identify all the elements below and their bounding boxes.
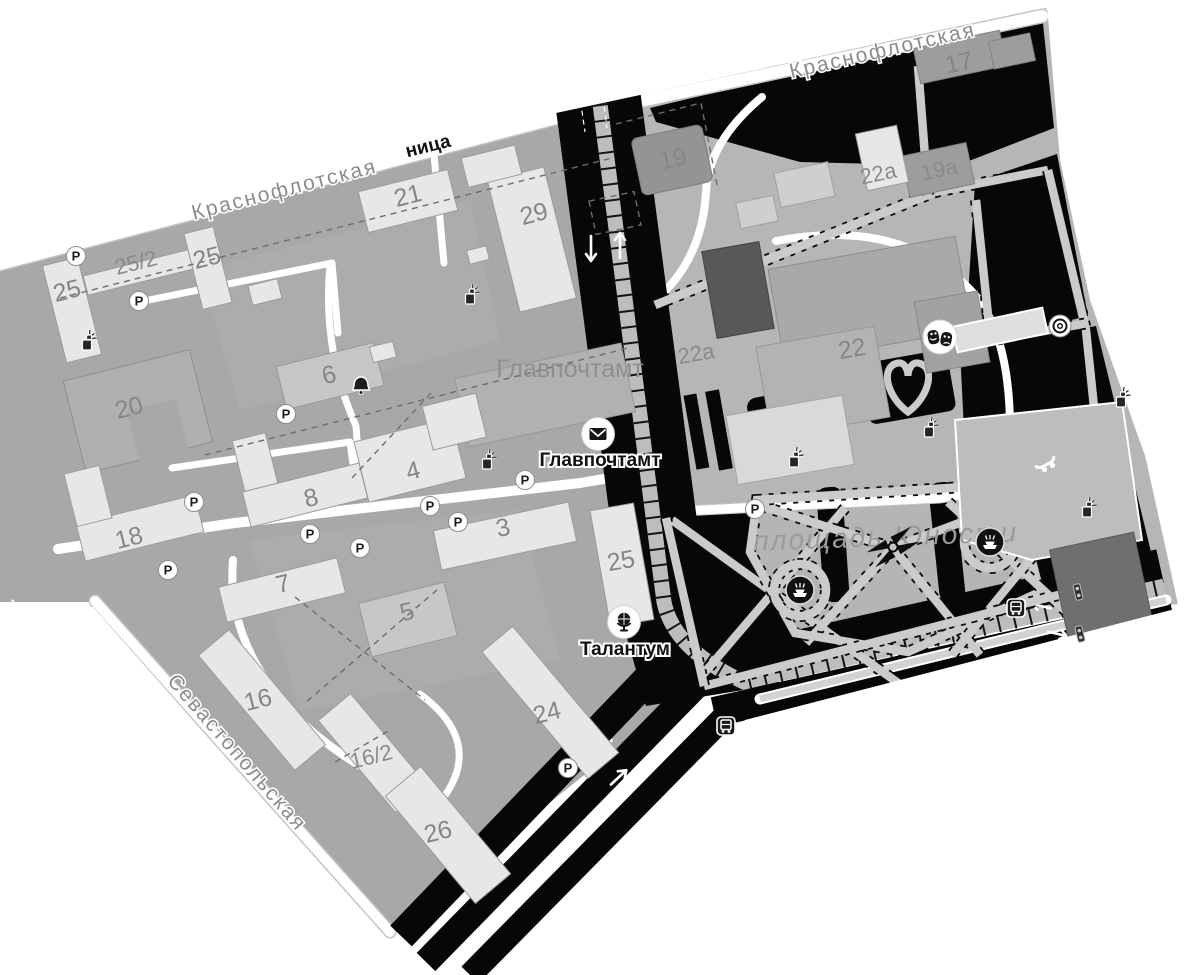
parking-marker[interactable]: P <box>67 247 86 266</box>
theater-poi[interactable] <box>923 320 957 354</box>
poi-label-talantum[interactable]: Талантум <box>580 639 670 660</box>
parking-icon: P <box>190 495 199 510</box>
map-canvas[interactable]: Краснофлотская Краснофлотская Севастопол… <box>0 0 1186 975</box>
parking-marker[interactable]: P <box>185 493 204 512</box>
memorial-target-marker[interactable] <box>1049 315 1071 337</box>
bus-icon <box>1007 599 1025 617</box>
mail-icon <box>590 428 607 440</box>
bus-stop-marker[interactable] <box>1007 599 1025 617</box>
area-label-post-office: Главпочтамт <box>496 355 644 383</box>
post-office-poi[interactable] <box>582 418 615 451</box>
parking-marker[interactable]: P <box>559 759 578 778</box>
parking-icon: P <box>306 527 315 542</box>
poi-label-post-office[interactable]: Главпочтамт <box>539 450 660 471</box>
bus-icon <box>717 717 735 735</box>
talantum-poi[interactable] <box>608 606 641 639</box>
parking-icon: P <box>564 761 573 776</box>
parking-icon: P <box>135 294 144 309</box>
building-number: 25 <box>605 545 637 577</box>
building-number: 17 <box>942 46 975 79</box>
parking-icon: P <box>164 563 173 578</box>
building-number: 22 <box>836 333 868 365</box>
fountain-icon <box>786 576 814 604</box>
parking-marker[interactable]: P <box>277 405 296 424</box>
parking-marker[interactable]: P <box>449 513 468 532</box>
parking-marker[interactable]: P <box>351 539 370 558</box>
fountain-icon <box>976 528 1004 556</box>
parking-icon: P <box>426 499 435 514</box>
parking-icon: P <box>521 473 530 488</box>
parking-marker[interactable]: P <box>516 471 535 490</box>
parking-icon: P <box>282 407 291 422</box>
bus-stop-marker[interactable] <box>717 717 735 735</box>
parking-marker[interactable]: P <box>130 292 149 311</box>
parking-icon: P <box>72 249 81 264</box>
fountain-marker[interactable] <box>976 528 1004 556</box>
parking-marker[interactable]: P <box>421 497 440 516</box>
building-number: 19 <box>656 142 689 175</box>
parking-marker[interactable]: P <box>159 561 178 580</box>
parking-icon: P <box>751 502 760 517</box>
fountain-marker[interactable] <box>786 576 814 604</box>
parking-icon: P <box>356 541 365 556</box>
parking-marker[interactable]: P <box>301 525 320 544</box>
parking-marker[interactable]: P <box>746 500 765 519</box>
parking-icon: P <box>454 515 463 530</box>
